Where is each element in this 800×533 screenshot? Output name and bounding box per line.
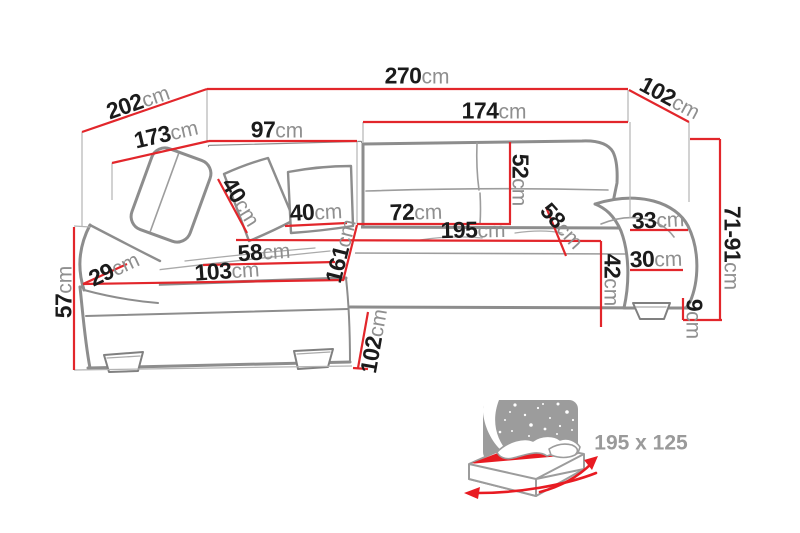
dimension-174cm: 174cm: [462, 100, 527, 123]
dimension-30cm: 30cm: [629, 247, 682, 272]
dimension-270cm: 270cm: [385, 65, 450, 88]
dimension-42cm: 42cm: [601, 254, 624, 307]
sleeping-function-icon: [464, 400, 598, 499]
dimension-57cm: 57cm: [53, 266, 76, 319]
dimension-33cm: 33cm: [631, 207, 685, 233]
headrest: [127, 144, 215, 246]
sleeping-area-size: 195 x 125: [594, 433, 687, 454]
dimension-72cm: 72cm: [389, 200, 442, 225]
dimension-71-91cm: 71-91cm: [721, 206, 744, 290]
dimension-103cm: 103cm: [194, 257, 260, 284]
dimension-40cm-front: 40cm: [289, 199, 343, 225]
dimension-9cm: 9cm: [683, 299, 706, 339]
furniture-dimension-diagram: 270cm 202cm 102cm 174cm 173cm 97cm 52cm …: [0, 0, 800, 533]
sofa-leg: [633, 303, 670, 319]
dimension-52cm: 52cm: [509, 154, 532, 207]
dim-line-195: [236, 240, 601, 241]
bed-pillow: [549, 444, 577, 457]
dimension-195cm: 195cm: [440, 218, 505, 242]
dimension-97cm: 97cm: [251, 119, 304, 142]
